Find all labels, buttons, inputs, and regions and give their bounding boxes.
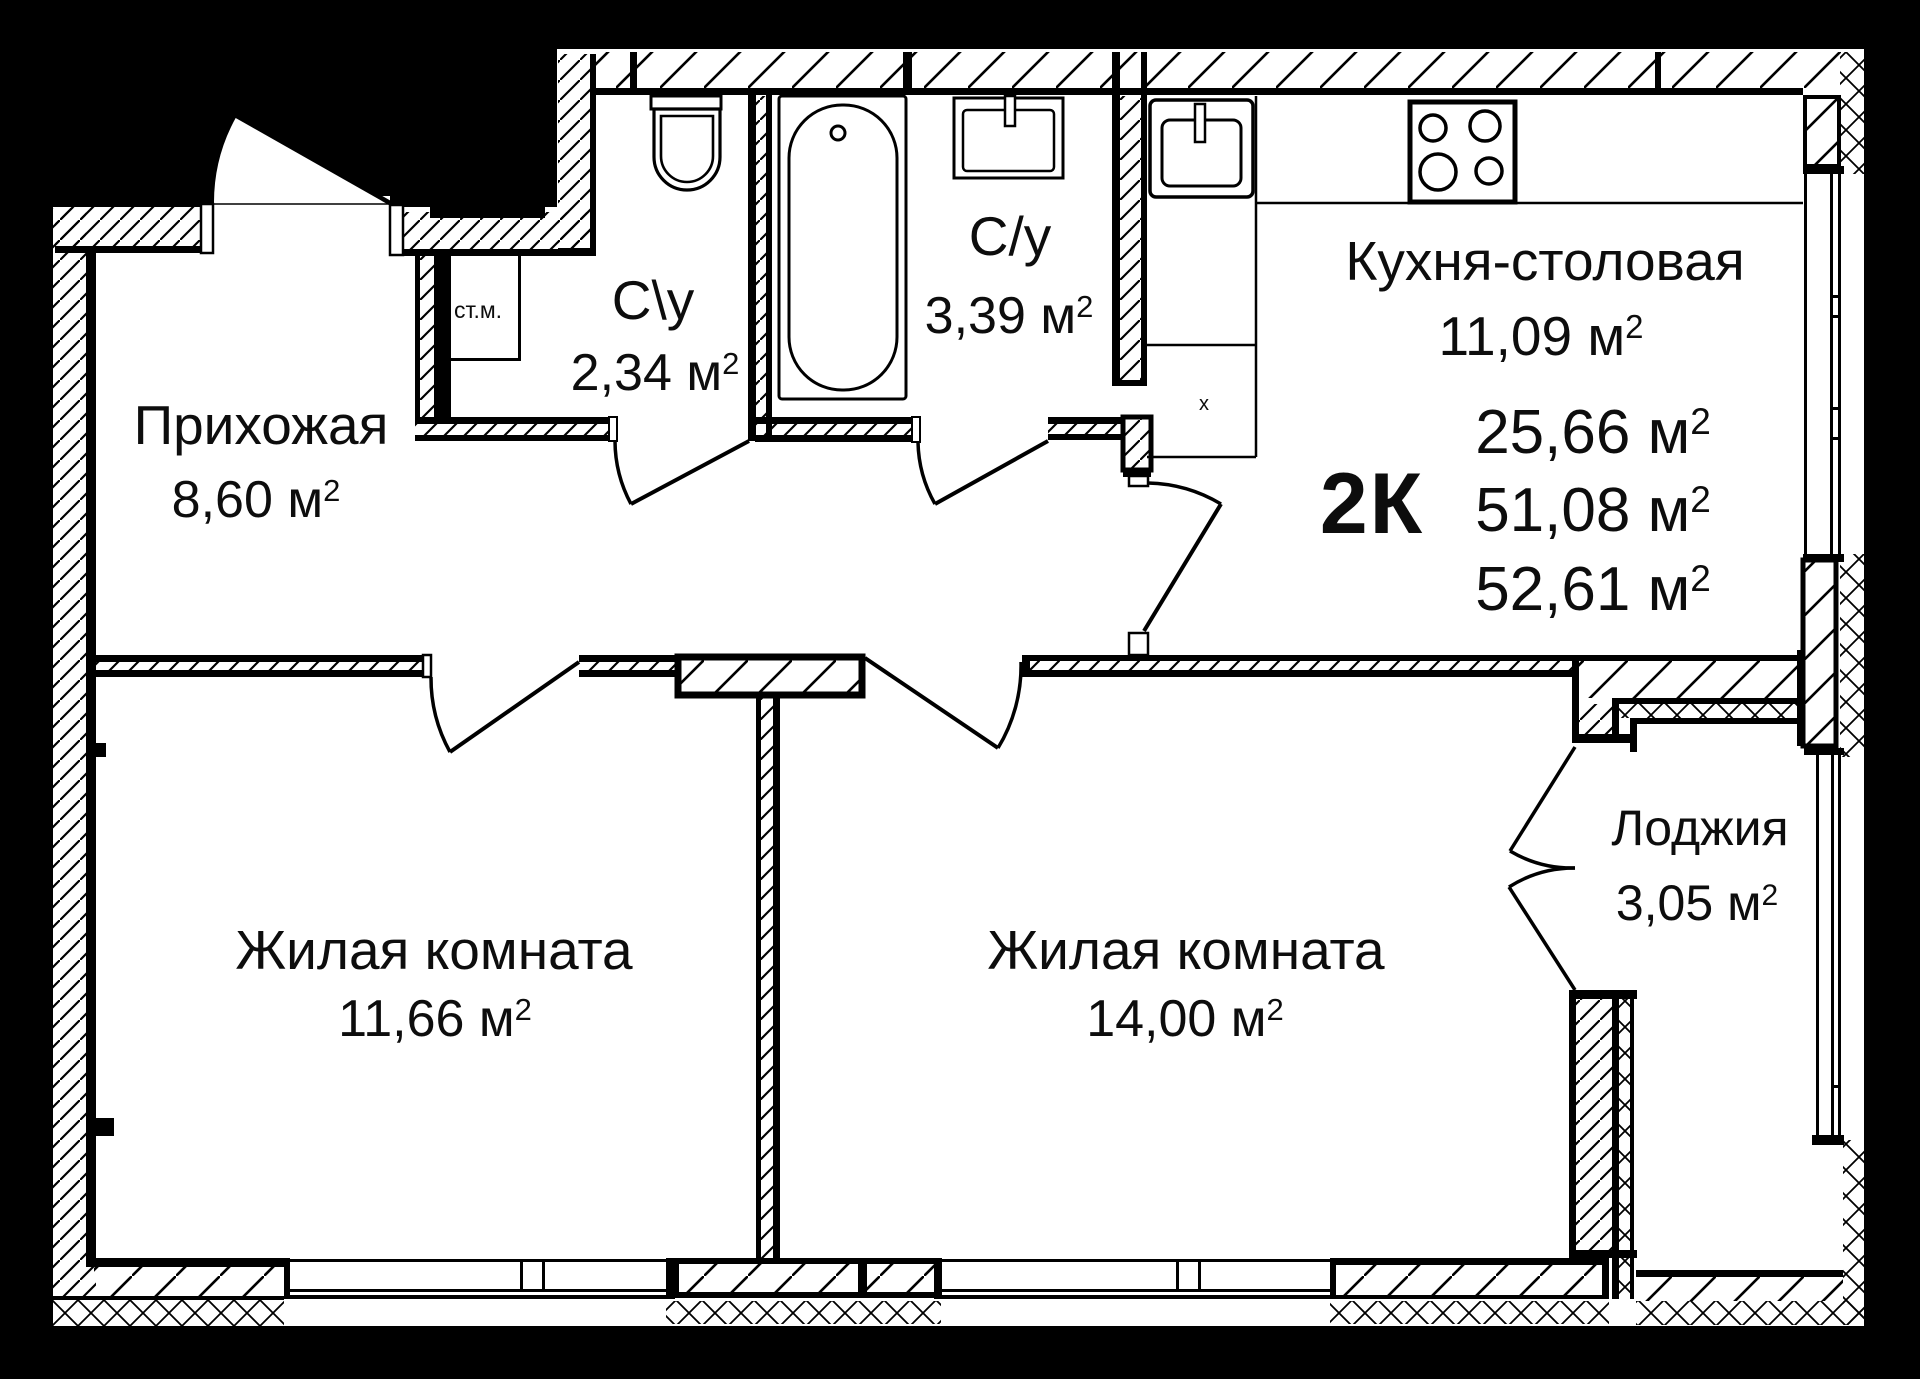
svg-text:Прихожая: Прихожая [134,394,389,456]
svg-text:11,66 м2: 11,66 м2 [338,990,532,1048]
svg-text:х: х [1199,393,1209,415]
svg-text:2,34 м2: 2,34 м2 [571,344,740,402]
svg-text:52,61 м2: 52,61 м2 [1475,555,1711,624]
svg-text:С/у: С/у [969,205,1052,267]
svg-text:25,66 м2: 25,66 м2 [1475,398,1711,467]
svg-text:Жилая комната: Жилая комната [987,919,1385,981]
svg-text:Жилая комната: Жилая комната [235,919,633,981]
svg-text:51,08 м2: 51,08 м2 [1475,476,1711,545]
svg-text:11,09 м2: 11,09 м2 [1438,305,1643,367]
svg-text:Кухня-столовая: Кухня-столовая [1345,230,1744,292]
svg-text:8,60 м2: 8,60 м2 [172,471,341,529]
svg-text:3,05 м2: 3,05 м2 [1616,875,1778,931]
svg-text:3,39 м2: 3,39 м2 [925,287,1094,345]
svg-text:14,00 м2: 14,00 м2 [1086,990,1284,1048]
svg-text:2К: 2К [1320,456,1424,552]
svg-text:С\у: С\у [612,269,695,331]
svg-text:ст.м.: ст.м. [454,297,502,323]
svg-text:Лоджия: Лоджия [1611,800,1788,856]
